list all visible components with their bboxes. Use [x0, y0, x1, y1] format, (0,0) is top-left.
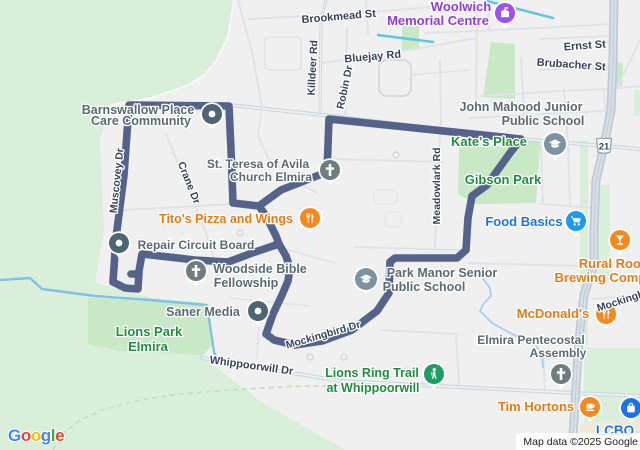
svg-text:Lions Park: Lions Park [116, 324, 183, 339]
svg-text:John Mahood Junior: John Mahood Junior [460, 100, 583, 114]
svg-text:Brewing Compan: Brewing Compan [555, 270, 640, 285]
svg-text:Rural Root: Rural Root [579, 256, 640, 271]
svg-text:Woolwich: Woolwich [431, 0, 491, 14]
svg-text:Meadowlark Rd: Meadowlark Rd [431, 147, 443, 224]
svg-text:Saner Media: Saner Media [166, 305, 241, 319]
svg-text:Memorial Centre: Memorial Centre [387, 13, 489, 28]
svg-text:Gibson Park: Gibson Park [465, 172, 542, 187]
svg-text:Assembly: Assembly [530, 346, 587, 360]
svg-text:Kate's Place: Kate's Place [451, 134, 527, 149]
svg-text:Lions Ring Trail: Lions Ring Trail [325, 366, 419, 380]
svg-text:21: 21 [599, 142, 610, 153]
svg-text:at Whippoorwill: at Whippoorwill [326, 381, 419, 395]
svg-text:Public School: Public School [383, 280, 466, 294]
svg-text:St. Teresa of Avila: St. Teresa of Avila [207, 157, 310, 171]
svg-text:Church Elmira: Church Elmira [230, 170, 312, 184]
svg-text:Tito's Pizza and Wings: Tito's Pizza and Wings [159, 212, 293, 226]
svg-text:Public School: Public School [502, 114, 585, 128]
svg-text:Food Basics: Food Basics [485, 214, 562, 229]
svg-text:Tim Hortons: Tim Hortons [498, 399, 574, 414]
svg-text:Google: Google [8, 426, 64, 445]
svg-text:Repair Circuit Board: Repair Circuit Board [138, 238, 255, 252]
svg-text:Woodside Bible: Woodside Bible [213, 262, 307, 276]
svg-text:Elmira: Elmira [128, 339, 169, 354]
svg-text:Map data ©2025 Google: Map data ©2025 Google [523, 436, 638, 448]
svg-text:Elmira Pentecostal: Elmira Pentecostal [477, 333, 584, 347]
svg-text:McDonald's: McDonald's [517, 306, 589, 321]
svg-text:Park Manor Senior: Park Manor Senior [387, 266, 498, 280]
svg-text:Care Community: Care Community [91, 114, 191, 128]
svg-text:Fellowship: Fellowship [214, 276, 279, 290]
